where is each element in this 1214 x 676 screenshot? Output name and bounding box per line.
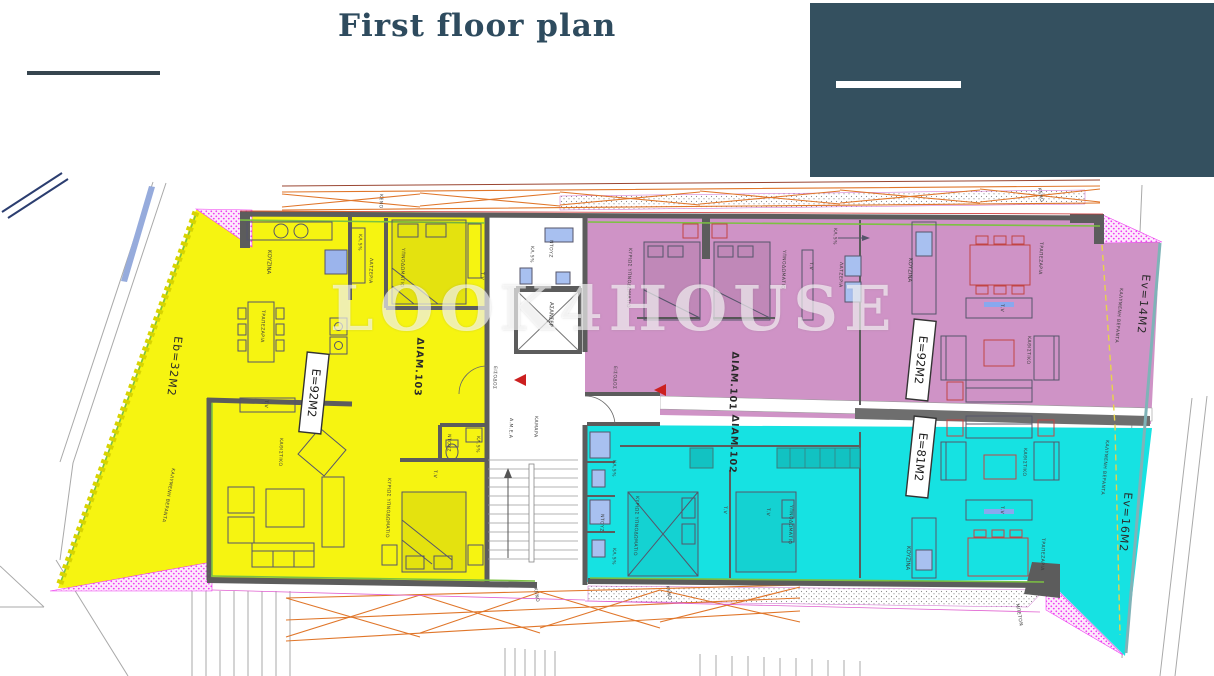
label-entrance-2: ΕΙΣΟΔΟΣ	[611, 366, 618, 389]
label-living-102: ΚΑΘΙΣΤΙΚΟ	[1021, 448, 1028, 477]
label-tv-101a: T.V	[808, 261, 814, 271]
label-void-top: ΚΕΝΟ	[377, 194, 384, 209]
label-slope-101a: ΚΛ.5%	[528, 246, 535, 263]
label-amea: Α.Μ.Ε.Α	[507, 418, 514, 439]
label-tv-102c: T.V	[999, 505, 1005, 515]
label-shower-102: ΝΤΟΥΖ	[598, 514, 605, 532]
label-tv-101b: T.V	[999, 303, 1005, 313]
label-dining-101: ΤΡΑΠΕΖΑΡΙΑ	[1037, 241, 1044, 275]
label-void-bottom-1: ΚΕΝΟ	[532, 587, 540, 602]
label-tv-102a: T.V	[722, 505, 728, 515]
label-dining-102: ΤΡΑΠΕΖΑΡΙΑ	[1039, 537, 1046, 571]
label-tv-103b: T.V	[263, 399, 269, 409]
label-living-103: ΚΑΘΙΣΤΙΚΟ	[277, 438, 284, 467]
label-lobby: ΚΑΜΑΡΑ	[532, 416, 539, 438]
neighbour-navy-lines	[2, 173, 68, 218]
label-tv-103c: T.V	[432, 469, 438, 479]
floor-plan-svg: E=92M2 E=92M2 E=81M2 ΔΙΑΜ.103 ΔΙΑΜ.101 Δ…	[0, 0, 1214, 676]
label-slope-102b: ΚΛ.5%	[610, 548, 617, 565]
label-kitchen-102: ΚΟΥΖΙΝΑ	[904, 546, 911, 571]
label-living-101: ΚΑΘΙΣΤΙΚΟ	[1025, 336, 1032, 365]
label-slope-102a: ΚΛ.5%	[610, 460, 617, 477]
label-slope-103: ΚΛ.5%	[356, 234, 363, 251]
page: First floor plan LOOK4HOUSE	[0, 0, 1214, 676]
stair-core	[487, 213, 585, 585]
label-dining-103: ΤΡΑΠΕΖΑΡΙΑ	[259, 309, 266, 343]
label-tv-103a: T.V	[479, 271, 485, 281]
label-elevator: ΑΣΑΝΣΕΡ	[547, 302, 554, 328]
label-shower-101: ΝΤΟΥΖ	[547, 240, 554, 258]
apt102-name: ΔΙΑΜ.102	[726, 414, 740, 474]
label-slope-103b: ΚΛ.5%	[474, 436, 481, 453]
label-entrance-1: ΕΙΣΟΔΟΣ	[491, 366, 498, 389]
label-utility-103: ΛΑΤΖΕΡΙΑ	[367, 258, 374, 284]
label-tv-102b: T.V	[765, 507, 771, 517]
label-utility-101: ΛΑΤΖΕΡΙΑ	[837, 262, 844, 288]
label-kitchen-101: ΚΟΥΖΙΝΑ	[906, 258, 913, 283]
label-kitchen-103: ΚΟΥΖΙΝΑ	[265, 250, 272, 275]
hatch-top-right	[1103, 215, 1162, 243]
label-shower-103: ΝΤΟΥΖ	[445, 434, 452, 452]
label-slope-101b: ΚΛ.5%	[831, 228, 838, 245]
